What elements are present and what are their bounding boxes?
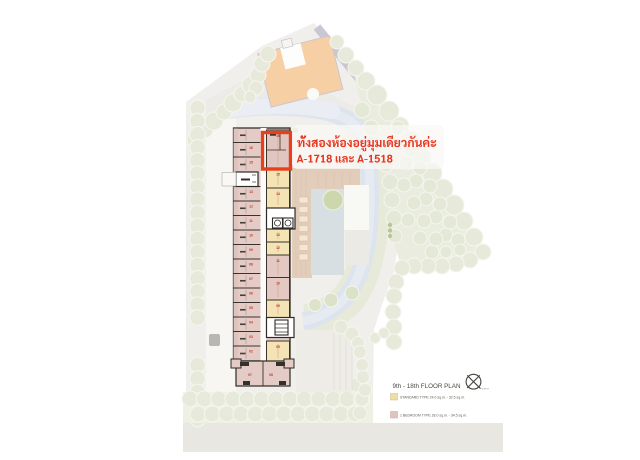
svg-text:09: 09 xyxy=(276,304,280,308)
svg-text:STANDARD TYPE 24.0 sq.m. - 32.: STANDARD TYPE 24.0 sq.m. - 32.5 sq.m. xyxy=(400,395,465,400)
svg-text:06: 06 xyxy=(249,292,253,296)
svg-text:09: 09 xyxy=(249,248,253,252)
svg-text:15: 15 xyxy=(276,173,280,177)
svg-text:08: 08 xyxy=(269,373,273,377)
svg-text:07: 07 xyxy=(249,277,253,281)
svg-text:05: 05 xyxy=(249,306,253,310)
svg-text:13: 13 xyxy=(276,233,280,237)
svg-text:12: 12 xyxy=(249,205,253,209)
svg-text:11: 11 xyxy=(249,219,253,223)
svg-text:1 BEDROOM TYPE 28.0 sq.m. - 34: 1 BEDROOM TYPE 28.0 sq.m. - 34.5 sq.m. xyxy=(400,413,467,418)
svg-text:05: 05 xyxy=(276,345,280,349)
svg-text:04: 04 xyxy=(249,321,253,325)
svg-text:13: 13 xyxy=(249,190,253,194)
svg-text:07: 07 xyxy=(248,373,252,377)
svg-text:NORTH: NORTH xyxy=(482,388,490,390)
svg-text:03: 03 xyxy=(249,335,253,339)
svg-text:12: 12 xyxy=(276,246,280,250)
svg-text:02: 02 xyxy=(249,350,253,354)
svg-text:16: 16 xyxy=(276,134,280,138)
svg-text:9th - 18th FLOOR PLAN: 9th - 18th FLOOR PLAN xyxy=(393,383,461,390)
svg-text:10: 10 xyxy=(249,234,253,238)
svg-text:11: 11 xyxy=(276,259,280,263)
svg-text:14: 14 xyxy=(276,192,280,196)
svg-text:15: 15 xyxy=(249,161,253,165)
svg-text:10: 10 xyxy=(276,282,280,286)
svg-text:16: 16 xyxy=(249,146,253,150)
svg-text:08: 08 xyxy=(249,263,253,267)
